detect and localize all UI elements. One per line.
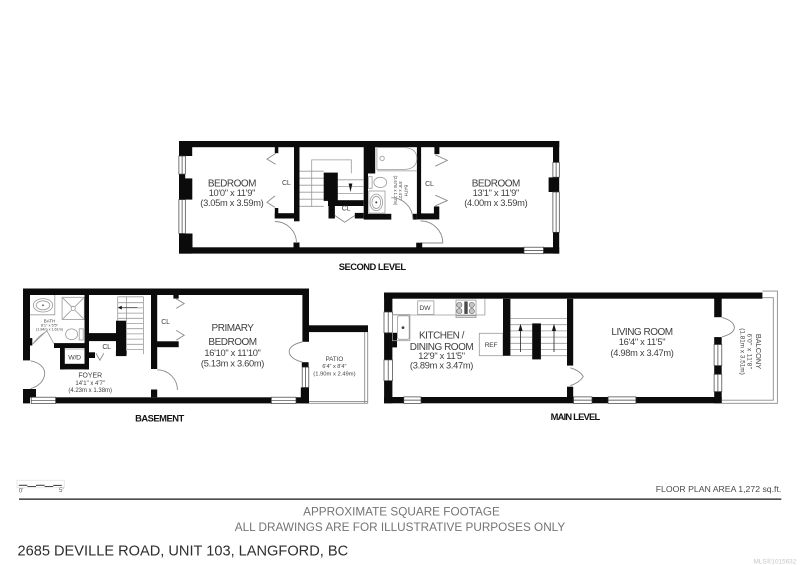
svg-text:FLOOR PLAN AREA 1,272 sq.ft.: FLOOR PLAN AREA 1,272 sq.ft. xyxy=(656,484,782,494)
svg-text:(2.67m x 1.27m): (2.67m x 1.27m) xyxy=(393,176,398,206)
svg-text:(4.23m x 1.38m): (4.23m x 1.38m) xyxy=(68,388,112,394)
svg-text:(4.98m x 3.47m): (4.98m x 3.47m) xyxy=(610,348,673,358)
svg-text:SECOND LEVEL: SECOND LEVEL xyxy=(339,261,407,272)
svg-text:CL: CL xyxy=(282,180,291,187)
svg-text:DW: DW xyxy=(419,305,431,312)
svg-text:13'1" x 11'9": 13'1" x 11'9" xyxy=(473,188,519,198)
svg-text:CL: CL xyxy=(425,181,434,188)
svg-text:CL: CL xyxy=(102,344,111,351)
svg-text:CL: CL xyxy=(342,206,351,213)
svg-text:PATIO: PATIO xyxy=(326,356,344,363)
svg-text:2685 DEVILLE ROAD, UNIT 103, L: 2685 DEVILLE ROAD, UNIT 103, LANGFORD, B… xyxy=(18,543,349,559)
svg-text:BEDROOM: BEDROOM xyxy=(208,337,256,348)
svg-text:KITCHEN /: KITCHEN / xyxy=(419,331,465,342)
svg-text:W/D: W/D xyxy=(68,355,81,362)
svg-text:10'0" x 11'9": 10'0" x 11'9" xyxy=(209,188,255,198)
svg-text:(3.05m x 3.59m): (3.05m x 3.59m) xyxy=(200,198,263,208)
svg-text:16'4" x 11'5": 16'4" x 11'5" xyxy=(619,337,665,347)
svg-text:FOYER: FOYER xyxy=(78,373,102,380)
svg-text:(3.89m x 3.47m): (3.89m x 3.47m) xyxy=(410,361,473,371)
svg-text:16'10" x 11'10": 16'10" x 11'10" xyxy=(204,348,260,358)
svg-text:6'0" x 11'8": 6'0" x 11'8" xyxy=(746,334,753,370)
svg-text:CL: CL xyxy=(161,319,170,326)
svg-text:(4.00m x 3.59m): (4.00m x 3.59m) xyxy=(464,198,527,208)
svg-text:APPROXIMATE SQUARE FOOTAGE: APPROXIMATE SQUARE FOOTAGE xyxy=(303,506,500,519)
svg-text:(1.81m x 3.51m): (1.81m x 3.51m) xyxy=(738,328,745,375)
svg-text:(1.84m x 1.61m): (1.84m x 1.61m) xyxy=(36,327,63,331)
svg-text:BALCONY: BALCONY xyxy=(754,334,763,369)
svg-text:MAIN LEVEL: MAIN LEVEL xyxy=(551,411,601,422)
svg-text:6'4" x 8'4": 6'4" x 8'4" xyxy=(322,364,346,370)
svg-text:12'9" x 11'5": 12'9" x 11'5" xyxy=(418,351,464,361)
svg-text:BASEMENT: BASEMENT xyxy=(135,412,184,423)
svg-text:(1.90m x 2.49m): (1.90m x 2.49m) xyxy=(313,371,355,377)
svg-text:MLS®1015632: MLS®1015632 xyxy=(754,557,797,565)
svg-text:0': 0' xyxy=(19,487,24,494)
svg-text:BATH: BATH xyxy=(404,185,409,196)
svg-text:REF: REF xyxy=(485,342,498,349)
svg-text:(5.13m x 3.60m): (5.13m x 3.60m) xyxy=(201,358,264,368)
svg-text:PRIMARY: PRIMARY xyxy=(212,323,255,334)
svg-text:5': 5' xyxy=(59,487,64,494)
svg-text:ALL DRAWINGS ARE FOR ILLUSTRAT: ALL DRAWINGS ARE FOR ILLUSTRATIVE PURPOS… xyxy=(235,521,566,534)
svg-text:14'1" x 4'7": 14'1" x 4'7" xyxy=(75,381,105,387)
